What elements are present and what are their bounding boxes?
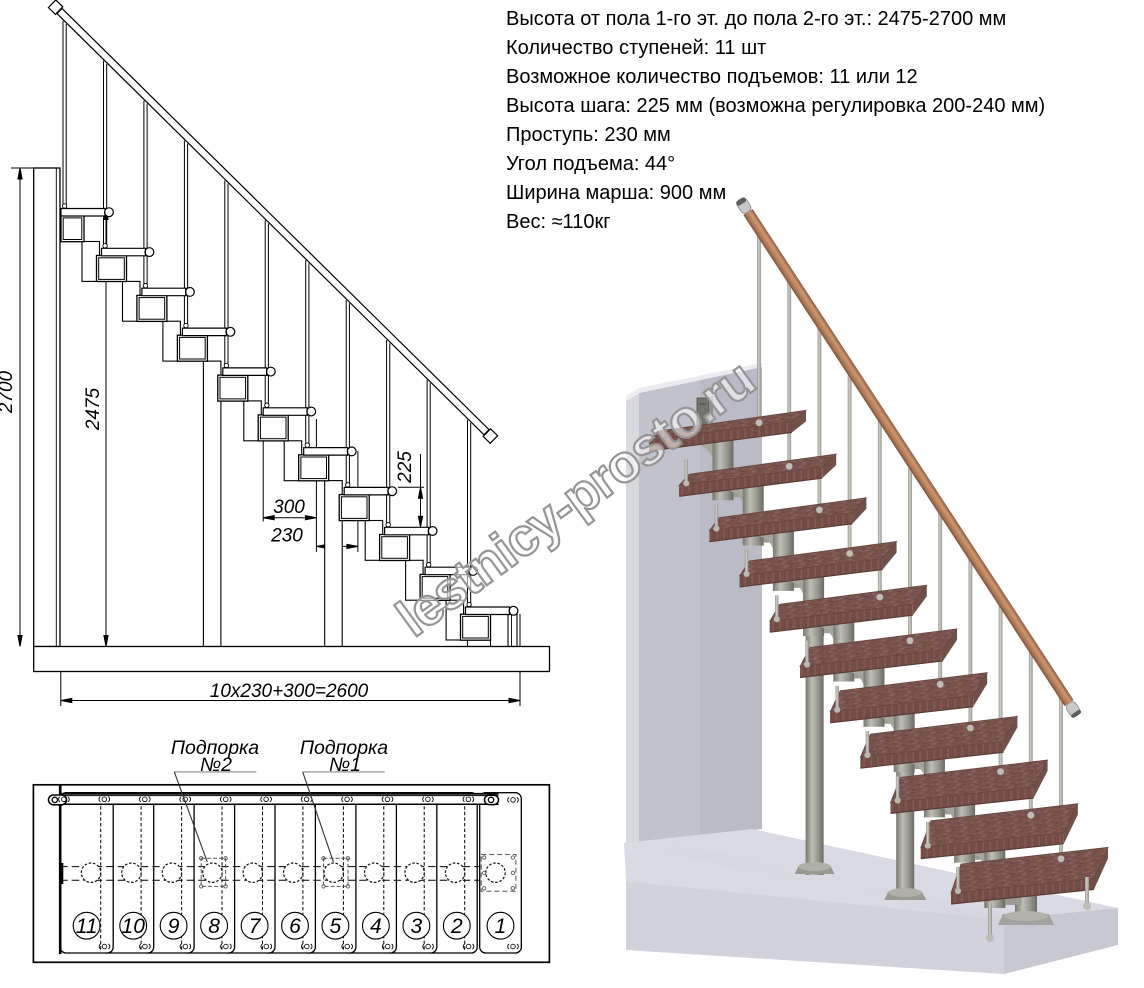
svg-text:11: 11 xyxy=(76,915,98,938)
svg-text:Угол подъема: 44°: Угол подъема: 44° xyxy=(506,153,675,175)
svg-text:Количество ступеней: 11 шт: Количество ступеней: 11 шт xyxy=(506,37,766,59)
svg-text:2475: 2475 xyxy=(83,387,104,431)
svg-text:2700: 2700 xyxy=(0,370,17,414)
svg-text:1: 1 xyxy=(495,915,507,938)
svg-text:Вес: ≈110кг: Вес: ≈110кг xyxy=(506,211,610,233)
svg-text:5: 5 xyxy=(330,915,342,938)
svg-text:6: 6 xyxy=(289,915,301,938)
svg-text:3: 3 xyxy=(411,915,423,938)
svg-text:300: 300 xyxy=(273,497,305,518)
svg-text:Возможное количество подъемов:: Возможное количество подъемов: 11 или 12 xyxy=(506,66,918,88)
svg-text:Ширина марша: 900 мм: Ширина марша: 900 мм xyxy=(506,182,726,204)
svg-text:8: 8 xyxy=(208,915,220,938)
svg-text:2: 2 xyxy=(450,915,463,938)
svg-text:230: 230 xyxy=(270,526,303,547)
svg-text:Высота шага: 225 мм (возможна: Высота шага: 225 мм (возможна регулировк… xyxy=(506,95,1045,117)
svg-text:225: 225 xyxy=(395,451,416,484)
svg-text:Проступь: 230 мм: Проступь: 230 мм xyxy=(506,124,671,146)
svg-text:10: 10 xyxy=(122,915,146,938)
svg-text:№2: №2 xyxy=(200,754,232,776)
svg-text:7: 7 xyxy=(249,915,262,938)
svg-text:9: 9 xyxy=(168,915,180,938)
svg-text:Высота от пола 1-го эт. до пол: Высота от пола 1-го эт. до пола 2-го эт.… xyxy=(506,8,1006,30)
svg-text:№1: №1 xyxy=(329,754,361,776)
svg-text:4: 4 xyxy=(370,915,382,938)
svg-text:10x230+300=2600: 10x230+300=2600 xyxy=(210,681,369,702)
